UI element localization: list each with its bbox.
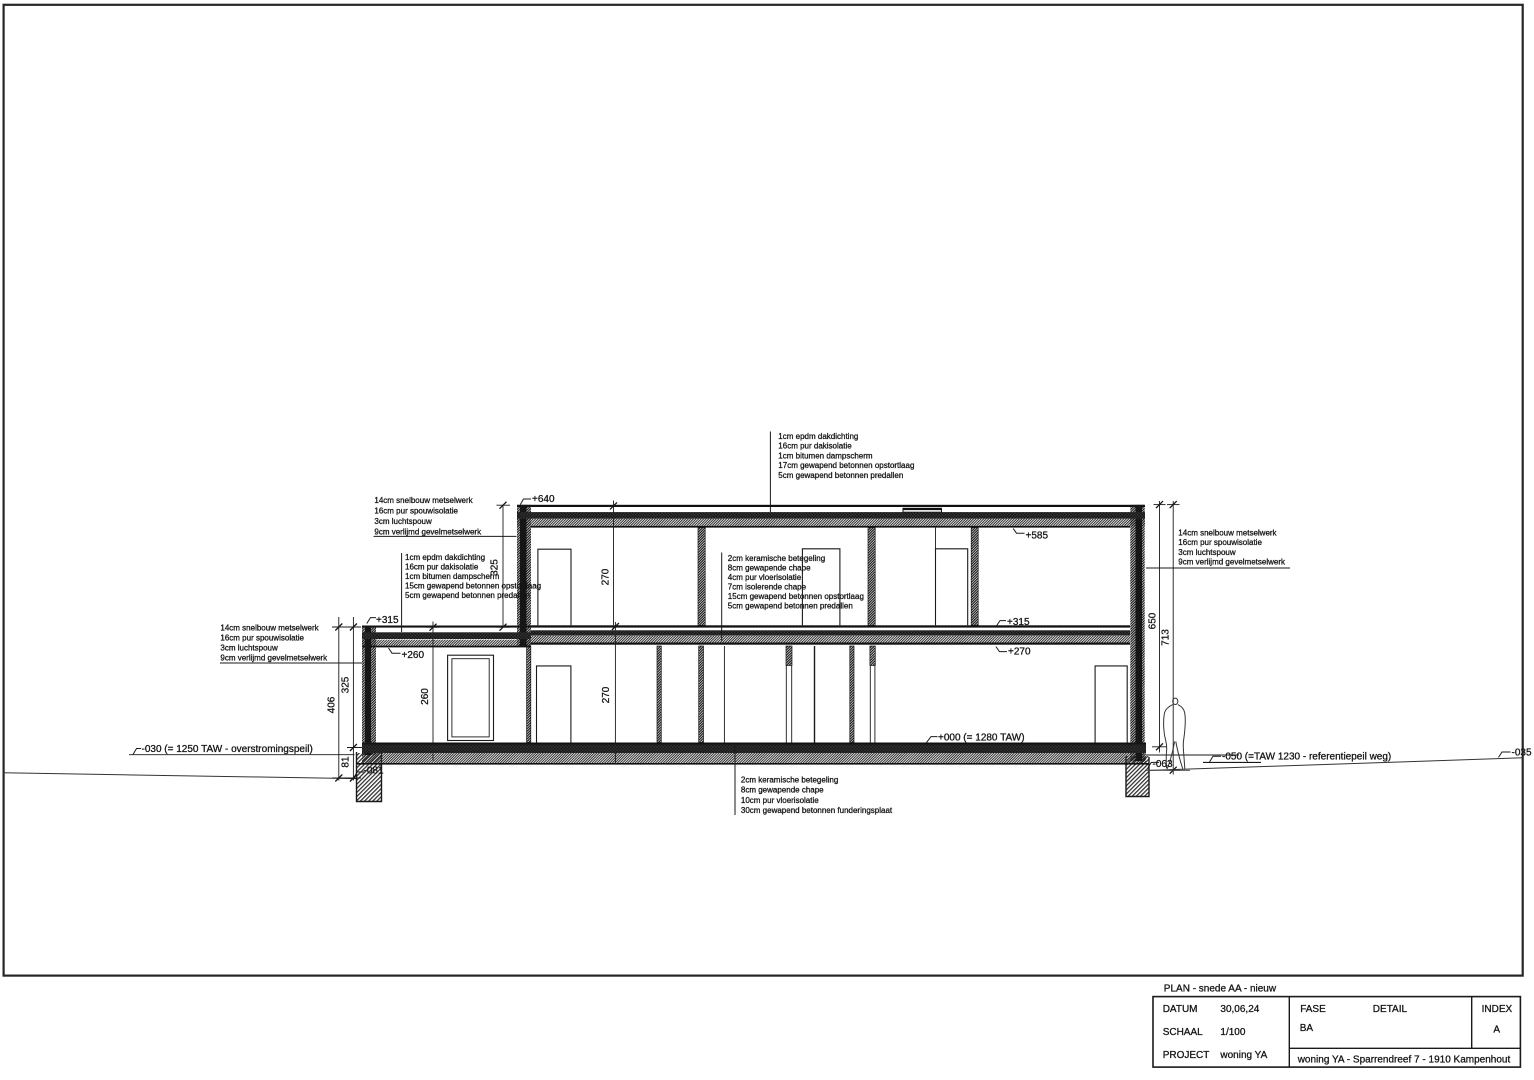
svg-text:INDEX: INDEX [1482,1004,1513,1015]
svg-text:woning YA: woning YA [1219,1050,1267,1061]
svg-text:2cm keramische betegeling: 2cm keramische betegeling [728,554,825,563]
svg-text:7cm isolerende chape: 7cm isolerende chape [728,583,807,592]
svg-text:270: 270 [601,686,612,703]
svg-text:15cm gewapend betonnen opstort: 15cm gewapend betonnen opstortlaag [728,592,864,601]
svg-text:DATUM: DATUM [1163,1004,1198,1015]
svg-text:FASE: FASE [1300,1004,1326,1015]
svg-text:17cm gewapend betonnen opstort: 17cm gewapend betonnen opstortlaag [778,461,914,470]
svg-text:-030 (= 1250 TAW - overstromin: -030 (= 1250 TAW - overstromingspeil) [142,744,313,755]
svg-text:406: 406 [327,696,338,713]
svg-text:5cm gewapend betonnen predalle: 5cm gewapend betonnen predallen [778,471,903,480]
svg-text:650: 650 [1147,612,1158,629]
svg-text:1cm epdm dakdichting: 1cm epdm dakdichting [405,553,485,562]
svg-text:1cm bitumen dampscherm: 1cm bitumen dampscherm [405,572,500,581]
svg-text:14cm snelbouw metselwerk: 14cm snelbouw metselwerk [220,624,319,633]
svg-text:woning YA - Sparrendreef 7 - 1: woning YA - Sparrendreef 7 - 1910 Kampen… [1297,1055,1511,1066]
svg-text:30cm gewapend betonnen funderi: 30cm gewapend betonnen funderingsplaat [741,806,893,815]
svg-text:+000 (= 1280 TAW): +000 (= 1280 TAW) [938,733,1025,744]
svg-text:1/100: 1/100 [1220,1027,1245,1038]
svg-text:16cm pur dakisolatie: 16cm pur dakisolatie [405,563,479,572]
svg-text:SCHAAL: SCHAAL [1163,1027,1203,1038]
svg-text:16cm pur spouwisolatie: 16cm pur spouwisolatie [220,634,304,643]
svg-text:5cm gewapend betonnen predalle: 5cm gewapend betonnen predallen [728,602,853,611]
svg-text:3cm luchtspouw: 3cm luchtspouw [220,643,278,652]
svg-text:-063: -063 [1153,759,1173,770]
svg-text:16cm pur dakisolatie: 16cm pur dakisolatie [778,442,852,451]
svg-text:3cm luchtspouw: 3cm luchtspouw [1178,548,1236,557]
svg-text:9cm verlijmd gevelmetselwerk: 9cm verlijmd gevelmetselwerk [374,527,482,536]
svg-text:270: 270 [601,568,612,585]
svg-text:BA: BA [1300,1023,1314,1034]
svg-text:8cm gewapende chape: 8cm gewapende chape [741,786,824,795]
svg-text:1cm bitumen dampscherm: 1cm bitumen dampscherm [778,451,873,460]
svg-text:+585: +585 [1026,530,1049,541]
svg-text:16cm pur spouwisolatie: 16cm pur spouwisolatie [374,506,458,515]
svg-text:81: 81 [341,756,352,768]
svg-text:10cm pur vloerisolatie: 10cm pur vloerisolatie [741,796,819,805]
svg-text:DETAIL: DETAIL [1373,1004,1408,1015]
svg-text:30,06,24: 30,06,24 [1220,1004,1259,1015]
svg-text:PLAN - snede AA - nieuw: PLAN - snede AA - nieuw [1164,983,1277,994]
svg-text:+260: +260 [402,650,425,661]
svg-text:16cm pur spouwisolatie: 16cm pur spouwisolatie [1178,538,1262,547]
svg-text:1cm epdm dakdichting: 1cm epdm dakdichting [778,432,858,441]
svg-text:A: A [1493,1025,1500,1036]
svg-text:3cm luchtspouw: 3cm luchtspouw [374,517,432,526]
svg-text:260: 260 [420,688,431,705]
svg-text:15cm gewapend betonnen opstort: 15cm gewapend betonnen opstortlaag [405,582,541,591]
svg-text:8cm gewapende chape: 8cm gewapende chape [728,564,811,573]
svg-text:9cm verlijmd gevelmetselwerk: 9cm verlijmd gevelmetselwerk [220,653,328,662]
svg-text:-050 (=TAW 1230 - referentiepe: -050 (=TAW 1230 - referentiepeil weg) [1222,751,1391,762]
svg-text:-081: -081 [364,765,384,776]
svg-text:-035: -035 [1512,747,1532,758]
svg-text:4cm pur vloerisolatie: 4cm pur vloerisolatie [728,573,802,582]
svg-text:713: 713 [1161,629,1172,646]
svg-text:9cm verlijmd gevelmetselwerk: 9cm verlijmd gevelmetselwerk [1178,558,1286,567]
svg-text:325: 325 [341,676,352,693]
svg-text:5cm gewapend betonnen predalle: 5cm gewapend betonnen predallen [405,591,530,600]
svg-text:+315: +315 [1007,617,1030,628]
svg-text:PROJECT: PROJECT [1163,1050,1210,1061]
svg-text:14cm snelbouw metselwerk: 14cm snelbouw metselwerk [1178,529,1277,538]
svg-text:2cm keramische betegeling: 2cm keramische betegeling [741,776,838,785]
svg-text:+315: +315 [376,615,399,626]
svg-text:14cm snelbouw metselwerk: 14cm snelbouw metselwerk [374,496,473,505]
svg-text:+270: +270 [1008,647,1031,658]
svg-text:+640: +640 [532,494,555,505]
